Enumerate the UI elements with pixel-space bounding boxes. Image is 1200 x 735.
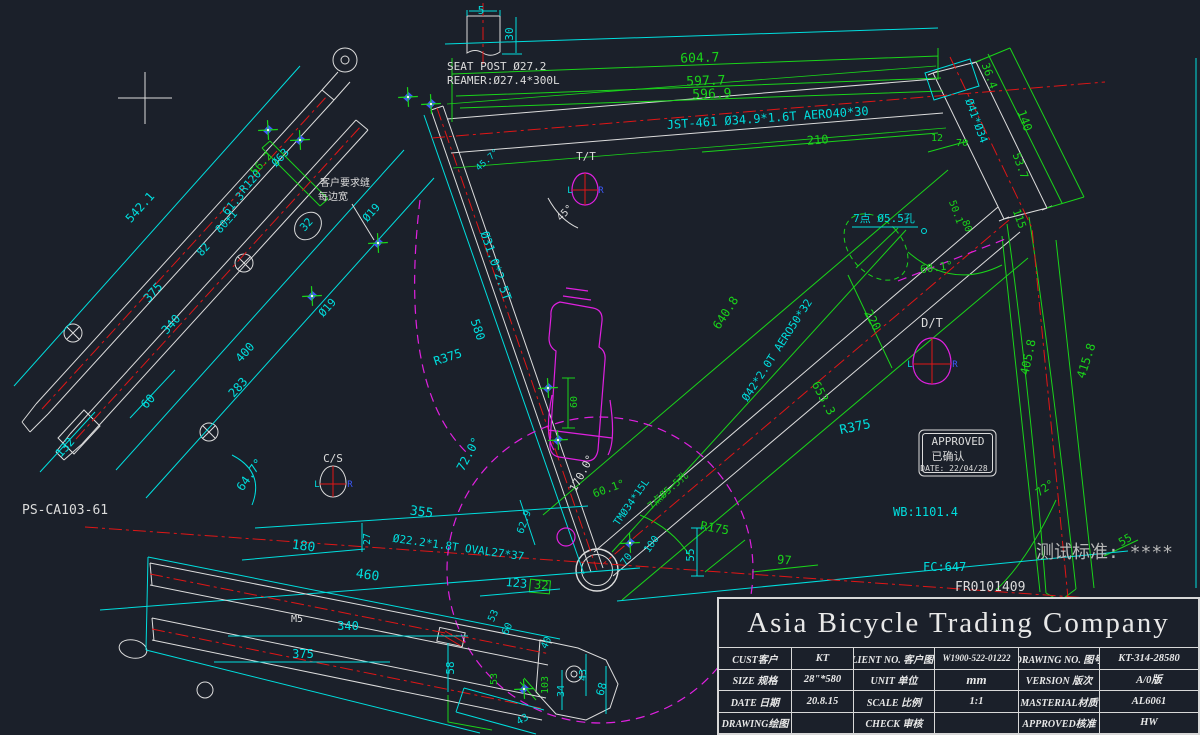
dim-60-cs: 60 xyxy=(500,621,515,637)
top-tube-spec: JST-461 Ø34.9*1.6T AERO40*30 xyxy=(666,104,869,132)
dim-12: 12 xyxy=(931,133,943,144)
tb-check-value xyxy=(935,713,1019,735)
tb-drawing-value xyxy=(792,713,854,735)
cs-icon-l: L xyxy=(314,480,319,490)
tb-material-value: AL6061 xyxy=(1100,691,1198,713)
dim-405-8: 405.8 xyxy=(1017,338,1038,376)
dim-5: 5 xyxy=(478,4,485,17)
dim-43-a: 43 xyxy=(578,669,589,681)
cad-drawing-canvas: 530SEAT POST Ø27.2REAMER:Ø27.4*300L604.7… xyxy=(0,0,1200,735)
test-standard: 测试标准: **** xyxy=(1036,542,1173,563)
dim-604-7: 604.7 xyxy=(680,50,720,66)
dim-340-cs: 340 xyxy=(337,619,359,633)
dim-375-stay: 375 xyxy=(141,280,166,305)
dt-icon-l: L xyxy=(907,360,912,370)
crosshair-icon xyxy=(118,72,172,124)
tb-version-value: A/0版 xyxy=(1100,670,1198,692)
bolt-marker-icon xyxy=(290,130,310,150)
fork xyxy=(976,48,1138,601)
dim-60-1-bb: 60.1° xyxy=(591,477,627,501)
dim-m5: M5 xyxy=(291,614,303,625)
weld-note-1: 客户要求缝 xyxy=(320,176,370,189)
bolt-marker-icon xyxy=(514,679,534,699)
front-center-label: FC:647 xyxy=(923,560,966,574)
dim-140: 140 xyxy=(1014,108,1035,133)
tb-approved-value: HW xyxy=(1100,713,1198,735)
dim-542-1: 542.1 xyxy=(123,189,158,225)
dim-460: 460 xyxy=(355,566,380,584)
seat-post-note-2: REAMER:Ø27.4*300L xyxy=(447,74,560,87)
bolt-marker-icon xyxy=(538,378,558,398)
cyan-dimension-lines xyxy=(100,28,1196,610)
tb-date-value: 20.8.15 xyxy=(792,691,854,713)
bolt-marker-icon xyxy=(302,286,322,306)
holes-note: 7点 Ø5.5孔 xyxy=(853,212,915,225)
tb-unit-label: UNIT 单位 xyxy=(854,670,935,692)
chainstay-spec: Ø22.2*1.8T OVAL27*37 xyxy=(392,532,525,563)
holes-note-bb: 7点Ø5.5孔 xyxy=(645,470,690,512)
down-tube-spec: Ø42*2.0T AERO50*32 xyxy=(739,297,815,404)
dt-teardrop-icon xyxy=(913,338,951,384)
dim-70-head: 70 xyxy=(956,138,968,149)
cs-icon-r: R xyxy=(347,480,353,490)
seat-tube-spec: Ø31.0*2.5T xyxy=(477,229,514,302)
dim-283: 283 xyxy=(226,375,251,400)
dim-596-9: 596.9 xyxy=(692,86,732,102)
dim-34: 34 xyxy=(556,685,567,697)
dim-580: 580 xyxy=(468,317,488,342)
dim-375-cs: 375 xyxy=(292,647,314,661)
company-name: Asia Bicycle Trading Company xyxy=(719,599,1198,648)
dim-30: 30 xyxy=(503,27,516,40)
dim-32-green: 32 xyxy=(534,577,550,592)
tb-date-label: DATE 日期 xyxy=(719,691,792,713)
tb-approved-label: APPROVED核准 xyxy=(1019,713,1100,735)
weld-note-2: 每边宽 xyxy=(318,190,348,203)
wheelbase-label: WB:1101.4 xyxy=(893,505,958,519)
dim-53-7: 53.7 xyxy=(1010,151,1031,180)
dim-415-8: 415.8 xyxy=(1074,341,1098,380)
dim-32-circle: 32 xyxy=(297,215,316,234)
tb-drawing-label: DRAWING绘图 xyxy=(719,713,792,735)
tt-icon-r: R xyxy=(598,186,604,196)
title-block-grid: CUST客户 KT CLIENT NO. 客户图号 W1900-522-0122… xyxy=(719,648,1198,734)
dt-section-label: D/T xyxy=(921,316,943,330)
tb-drawingno-value: KT-314-28580 xyxy=(1100,648,1198,670)
dim-97: 97 xyxy=(777,552,793,567)
bolt-marker-icon xyxy=(398,87,418,107)
dim-80-head: 80 xyxy=(959,219,973,234)
frame-number: FR0101409 xyxy=(955,580,1025,595)
dim-r375-right: R375 xyxy=(838,417,872,438)
tb-cust-value: KT xyxy=(792,648,854,670)
dim-36-4: 36.4 xyxy=(979,61,1000,91)
dim-355: 355 xyxy=(409,503,434,521)
approved-text: APPROVED xyxy=(932,435,985,448)
dim-210: 210 xyxy=(806,132,829,147)
approved-cn: 已确认 xyxy=(932,450,965,463)
seat-post-note-1: SEAT POST Ø27.2 xyxy=(447,60,546,73)
cs-teardrop-icon xyxy=(320,466,346,497)
dim-55-bb: 55 xyxy=(684,548,697,561)
dim-53-a: 53 xyxy=(486,608,501,624)
tt-section-label: T/T xyxy=(576,150,596,163)
dim-60-stay: 60 xyxy=(138,391,158,411)
tb-scale-value: 1:1 xyxy=(935,691,1019,713)
dim-60-bottle: 60 xyxy=(569,396,580,408)
dim-82: 82 xyxy=(194,240,213,259)
dim-r175: R175 xyxy=(699,519,730,538)
bolt-marker-icon xyxy=(620,533,640,553)
tt-icon-l: L xyxy=(567,186,572,196)
dim-43-b: 43 xyxy=(515,712,531,728)
tb-material-label: MASTERIAL材质 xyxy=(1019,691,1100,713)
tb-scale-label: SCALE 比例 xyxy=(854,691,935,713)
tb-size-label: SIZE 规格 xyxy=(719,670,792,692)
dim-103: 103 xyxy=(540,676,551,694)
dim-r375-left: R375 xyxy=(432,346,464,368)
dim-180: 180 xyxy=(291,537,316,555)
dim-68: 68 xyxy=(594,681,610,697)
tb-check-label: CHECK 审核 xyxy=(854,713,935,735)
dim-132: 132 xyxy=(53,435,78,460)
seatstay-detail xyxy=(14,48,434,498)
dim-115: 115 xyxy=(1010,207,1029,230)
dim-123: 123 xyxy=(505,575,528,591)
bolt-marker-icon xyxy=(258,120,278,140)
tb-size-value: 28"*580 xyxy=(792,670,854,692)
dt-icon-r: R xyxy=(952,360,958,370)
cs-section-label: C/S xyxy=(323,452,343,465)
tb-drawingno-label: DRAWING NO. 图号 xyxy=(1019,648,1100,670)
tt-teardrop-icon xyxy=(548,173,598,228)
approved-date: DATE: 22/04/28 xyxy=(920,464,988,473)
tb-unit-value: mm xyxy=(935,670,1019,692)
tb-clientno-value: W1900-522-01222 xyxy=(935,648,1019,670)
dim-72-0deg: 72.0° xyxy=(454,435,483,473)
dim-653-3: 653.3 xyxy=(809,379,838,417)
dim-45deg: 45° xyxy=(555,203,576,224)
dim-53-b: 53 xyxy=(489,673,500,685)
chainstay-part-ref: PS-CA103-61 xyxy=(22,503,108,518)
tb-version-label: VERSION 版次 xyxy=(1019,670,1100,692)
tb-cust-label: CUST客户 xyxy=(719,648,792,670)
tb-clientno-label: CLIENT NO. 客户图号 xyxy=(854,648,935,670)
dim-45-7: 45.7° xyxy=(474,148,501,174)
red-centerlines xyxy=(85,57,1130,601)
dim-62-9: 62.9 xyxy=(515,509,534,535)
dim-27: 27 xyxy=(362,533,373,545)
dim-400: 400 xyxy=(233,340,258,365)
dim-58: 58 xyxy=(444,661,457,674)
dim-d19-a: Ø19 xyxy=(360,201,383,224)
dim-640-8: 640.8 xyxy=(710,294,741,332)
dim-64-7deg: 64.7° xyxy=(234,456,266,494)
title-block: Asia Bicycle Trading Company CUST客户 KT C… xyxy=(717,597,1200,735)
dim-d19-b: Ø19 xyxy=(316,296,339,319)
